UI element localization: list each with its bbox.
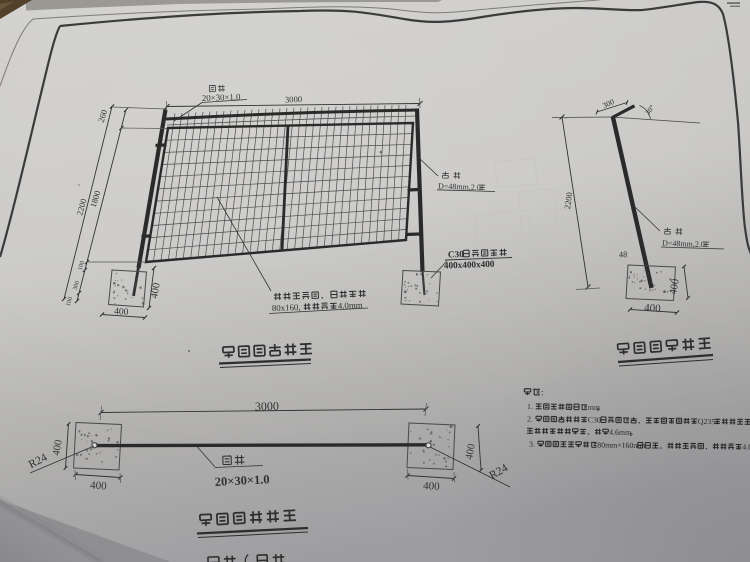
svg-text:20×30×1.0: 20×30×1.0 xyxy=(214,472,270,489)
svg-text:80x160,: 80x160, xyxy=(272,302,301,313)
svg-text:48: 48 xyxy=(619,249,628,259)
svg-text:400: 400 xyxy=(114,307,129,318)
svg-text:400: 400 xyxy=(90,480,108,493)
svg-text:3000: 3000 xyxy=(255,399,279,414)
svg-text:400x400x400: 400x400x400 xyxy=(444,259,495,271)
svg-text:C30: C30 xyxy=(448,249,465,260)
svg-text:3000: 3000 xyxy=(285,94,302,104)
